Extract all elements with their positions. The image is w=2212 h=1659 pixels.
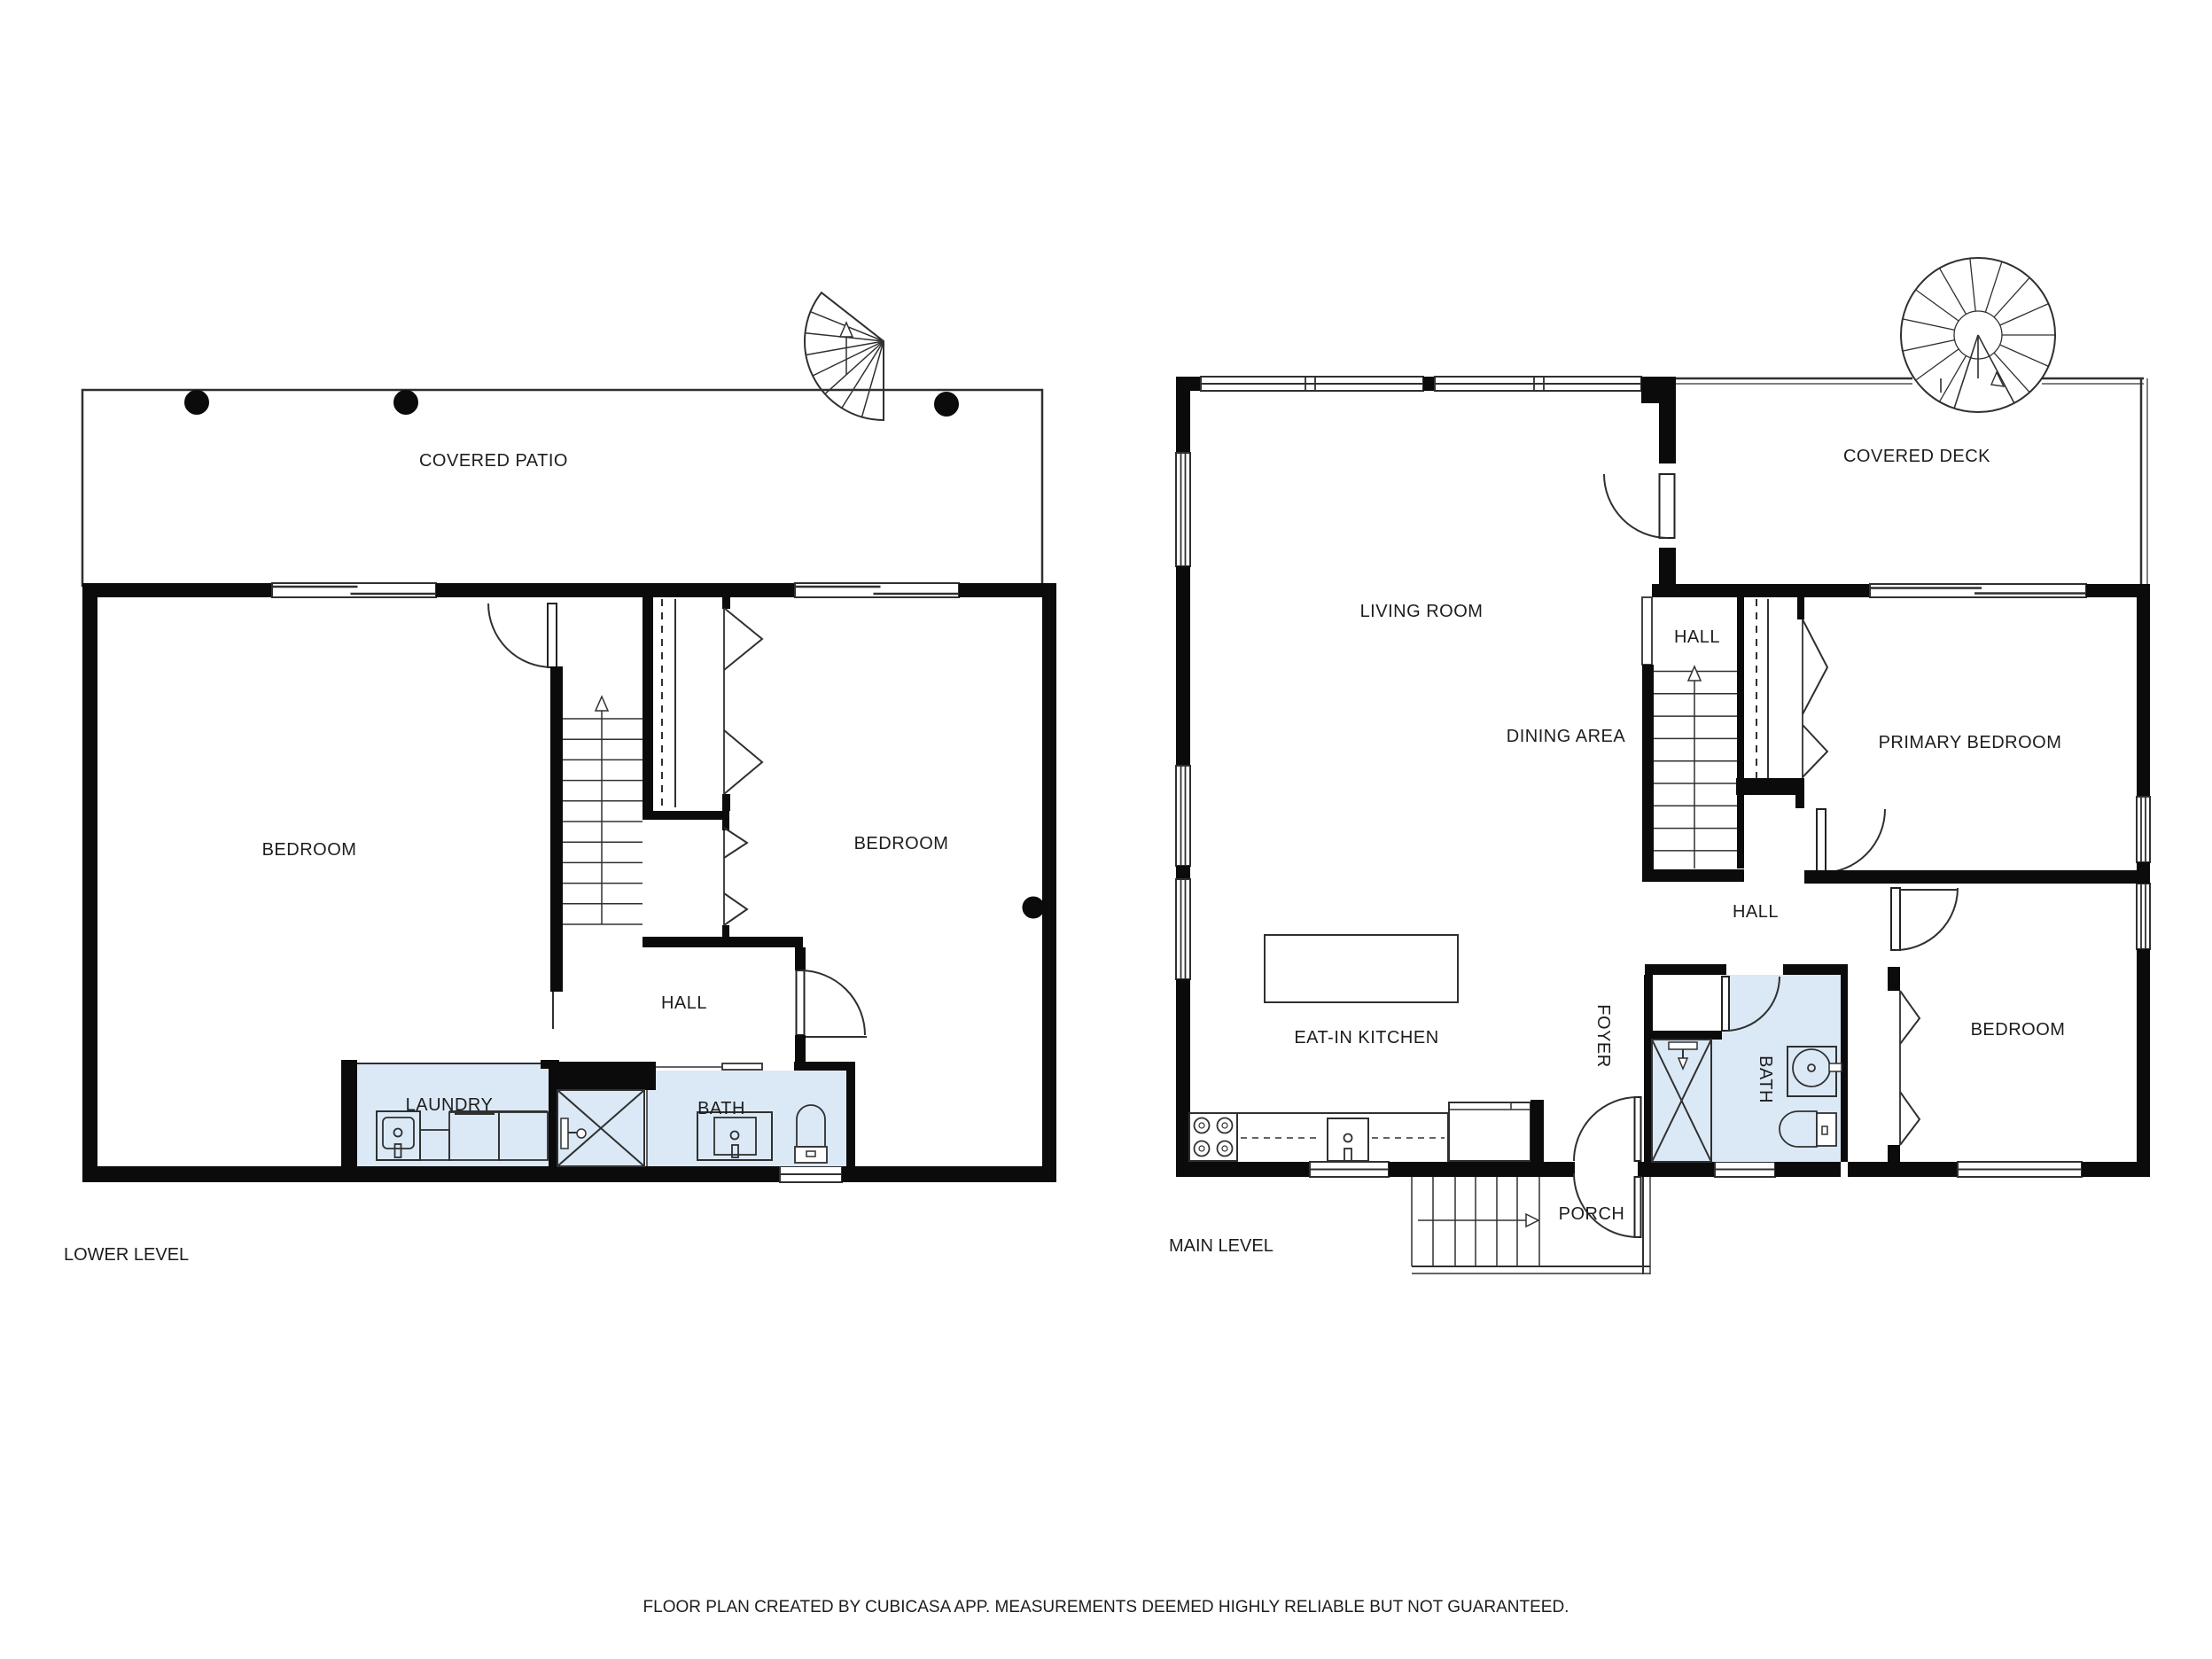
svg-text:LOWER LEVEL: LOWER LEVEL <box>64 1245 189 1265</box>
svg-text:FOYER: FOYER <box>1593 1004 1613 1067</box>
svg-text:DINING AREA: DINING AREA <box>1507 727 1626 746</box>
svg-text:HALL: HALL <box>1674 627 1720 647</box>
svg-text:LIVING ROOM: LIVING ROOM <box>1360 602 1484 621</box>
svg-text:HALL: HALL <box>1733 902 1779 922</box>
svg-text:BEDROOM: BEDROOM <box>262 840 357 860</box>
svg-text:BATH: BATH <box>1756 1055 1775 1103</box>
svg-text:FLOOR PLAN CREATED BY CUBICASA: FLOOR PLAN CREATED BY CUBICASA APP. MEAS… <box>643 1598 1569 1616</box>
svg-text:BEDROOM: BEDROOM <box>854 834 949 853</box>
svg-text:HALL: HALL <box>661 993 707 1013</box>
svg-text:BATH: BATH <box>697 1099 745 1118</box>
svg-text:MAIN LEVEL: MAIN LEVEL <box>1169 1236 1273 1256</box>
svg-text:PRIMARY BEDROOM: PRIMARY BEDROOM <box>1879 733 2062 752</box>
svg-text:BEDROOM: BEDROOM <box>1971 1020 2066 1040</box>
svg-text:EAT-IN KITCHEN: EAT-IN KITCHEN <box>1294 1028 1438 1048</box>
svg-text:LAUNDRY: LAUNDRY <box>406 1095 494 1115</box>
svg-text:COVERED DECK: COVERED DECK <box>1843 447 1990 466</box>
svg-text:PORCH: PORCH <box>1559 1204 1625 1224</box>
svg-text:COVERED PATIO: COVERED PATIO <box>419 451 568 471</box>
